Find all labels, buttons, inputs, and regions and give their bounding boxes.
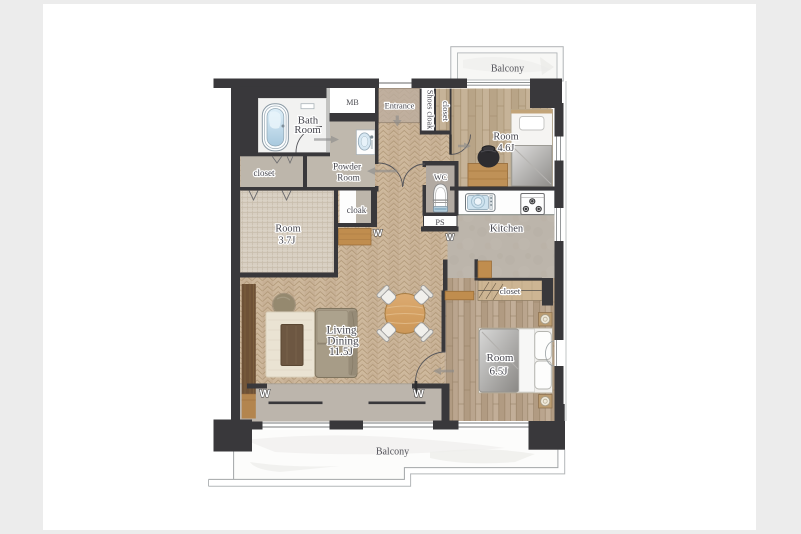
svg-text:W: W	[414, 388, 425, 400]
svg-text:6.5J: 6.5J	[489, 366, 508, 378]
svg-text:4.6J: 4.6J	[498, 143, 515, 154]
svg-text:Powder: Powder	[333, 162, 361, 172]
svg-text:Entrance: Entrance	[385, 102, 415, 111]
svg-text:Room: Room	[487, 352, 514, 364]
svg-text:WC: WC	[434, 173, 448, 182]
svg-text:cloak: cloak	[347, 205, 367, 215]
svg-text:MB: MB	[346, 98, 358, 107]
svg-text:closet: closet	[254, 168, 275, 178]
svg-text:PS: PS	[435, 218, 445, 227]
svg-text:closet: closet	[500, 286, 521, 296]
svg-text:Room: Room	[294, 124, 321, 136]
svg-text:Kitchen: Kitchen	[490, 224, 524, 235]
svg-text:closet: closet	[441, 101, 451, 122]
svg-text:W: W	[260, 388, 271, 400]
svg-text:Room: Room	[493, 132, 518, 143]
svg-text:Room: Room	[275, 224, 300, 235]
svg-text:W: W	[373, 228, 382, 239]
svg-text:3.7J: 3.7J	[279, 236, 296, 247]
svg-text:11.5J: 11.5J	[329, 346, 353, 358]
svg-text:W: W	[446, 233, 455, 243]
svg-text:Shoes cloak: Shoes cloak	[426, 90, 435, 130]
svg-text:Balcony: Balcony	[376, 447, 409, 458]
svg-text:Room: Room	[337, 173, 359, 183]
svg-text:Balcony: Balcony	[491, 64, 524, 75]
